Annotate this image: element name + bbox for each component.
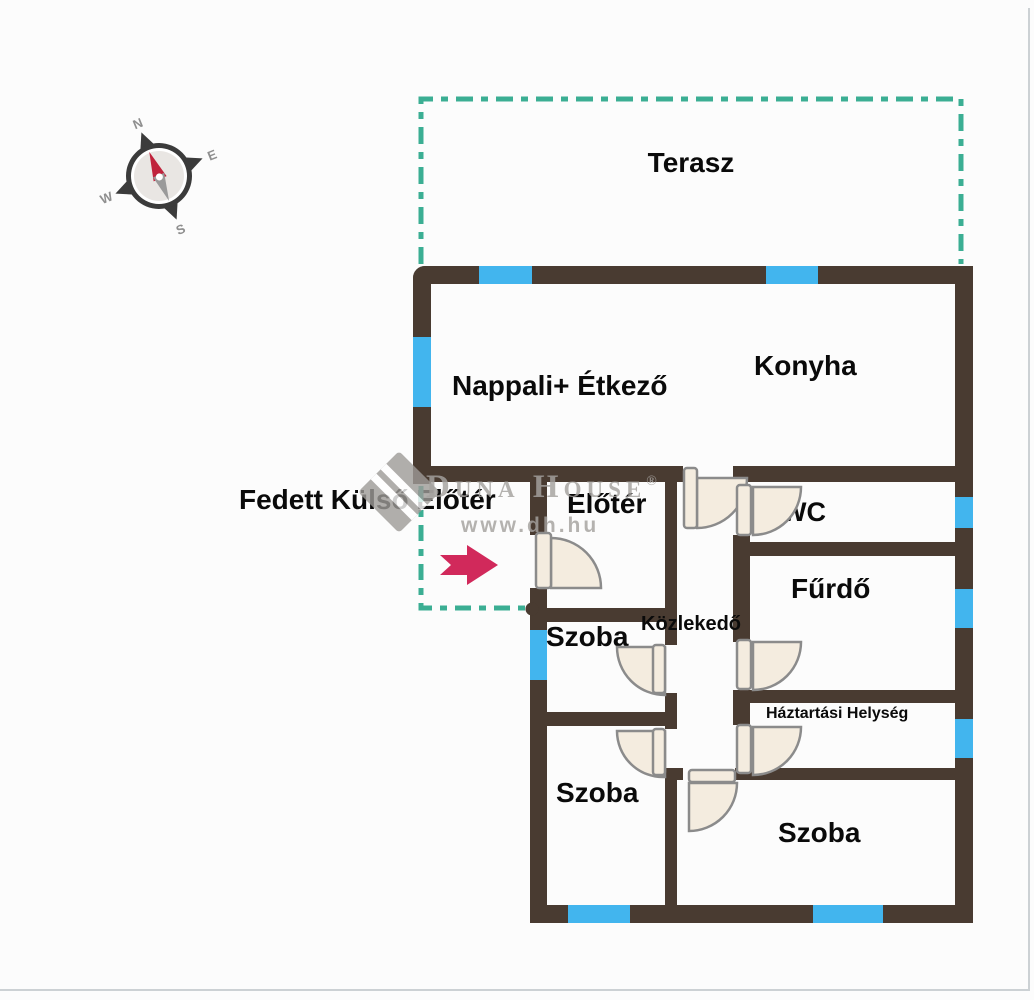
compass-letter-e: E [205, 146, 219, 163]
door-leaf-entrance [536, 533, 551, 588]
door-leaf-wc [737, 485, 751, 535]
room-label-living-dining: Nappali+ Étkező [452, 371, 668, 400]
wall-bathroom-bottom [733, 690, 955, 703]
window-top-1 [479, 266, 532, 284]
compass-spike-e [184, 151, 206, 172]
wall-room3-top-left [665, 768, 683, 780]
window-bottom-2 [813, 905, 883, 923]
wall-living-bottom-right [733, 466, 955, 482]
room-label-bathroom: Fűrdő [791, 574, 870, 603]
door-arc-entrance [551, 538, 601, 588]
room-label-room3: Szoba [778, 818, 860, 847]
door-leaf-room2 [653, 729, 665, 775]
room-label-kitchen: Konyha [754, 351, 857, 380]
compass-letter-n: N [131, 115, 145, 132]
door-leaf-room1 [653, 645, 665, 693]
door-arc-kitchen-hallway [697, 478, 747, 528]
window-left-upper [413, 337, 431, 407]
watermark-registered-mark: ® [646, 474, 656, 489]
door-arc-room3 [689, 783, 737, 831]
compass-needle-south [153, 173, 175, 203]
watermark-brand: Duna House® [426, 469, 657, 506]
door-arc-bathroom [753, 642, 801, 690]
door-leaf-room3 [689, 770, 735, 782]
entrance-arrow-icon [440, 545, 498, 585]
door-arc-room2 [617, 731, 665, 777]
floor-plan-image: N E S W Terasz Nappali+ Étkező Konyha Fe… [0, 0, 1034, 1000]
wall-room1-bottom [530, 712, 677, 726]
compass-spike-s [163, 201, 184, 223]
room-label-room2: Szoba [556, 778, 638, 807]
image-edge-line-right [1028, 8, 1030, 990]
room-label-wc: WC [781, 498, 826, 526]
compass-spike-w [112, 180, 134, 201]
wall-wc-bathroom [733, 542, 955, 556]
compass-icon: N E S W [76, 94, 240, 260]
door-leaf-kitchen-hallway [684, 468, 697, 528]
watermark-brand-text: Duna House [426, 469, 646, 505]
room-label-room1: Szoba [546, 622, 628, 651]
watermark-url: www.dh.hu [461, 514, 599, 538]
window-bottom-1 [568, 905, 630, 923]
window-left-lower [530, 630, 547, 680]
door-leaf-utility [737, 725, 751, 773]
terrace-dashed-outline [421, 99, 961, 264]
window-right-1 [955, 497, 973, 528]
compass-needle-north [143, 149, 167, 181]
wall-corridor-left-a [665, 482, 677, 608]
wall-corridor-left-d [665, 777, 677, 905]
compass-letter-w: W [98, 188, 116, 207]
room-label-terrace: Terasz [421, 148, 961, 177]
window-right-2 [955, 589, 973, 628]
room-label-utility: Háztartási Helység [766, 706, 908, 723]
image-edge-line-bottom [0, 989, 1030, 991]
window-right-3 [955, 719, 973, 758]
compass-letter-s: S [174, 221, 188, 238]
door-arc-room1 [617, 647, 665, 695]
compass-spike-n [134, 129, 155, 151]
wall-room3-top-right [735, 768, 955, 780]
room-label-hallway: Közlekedő [641, 614, 741, 635]
window-top-2 [766, 266, 818, 284]
door-leaf-bathroom [737, 640, 751, 689]
